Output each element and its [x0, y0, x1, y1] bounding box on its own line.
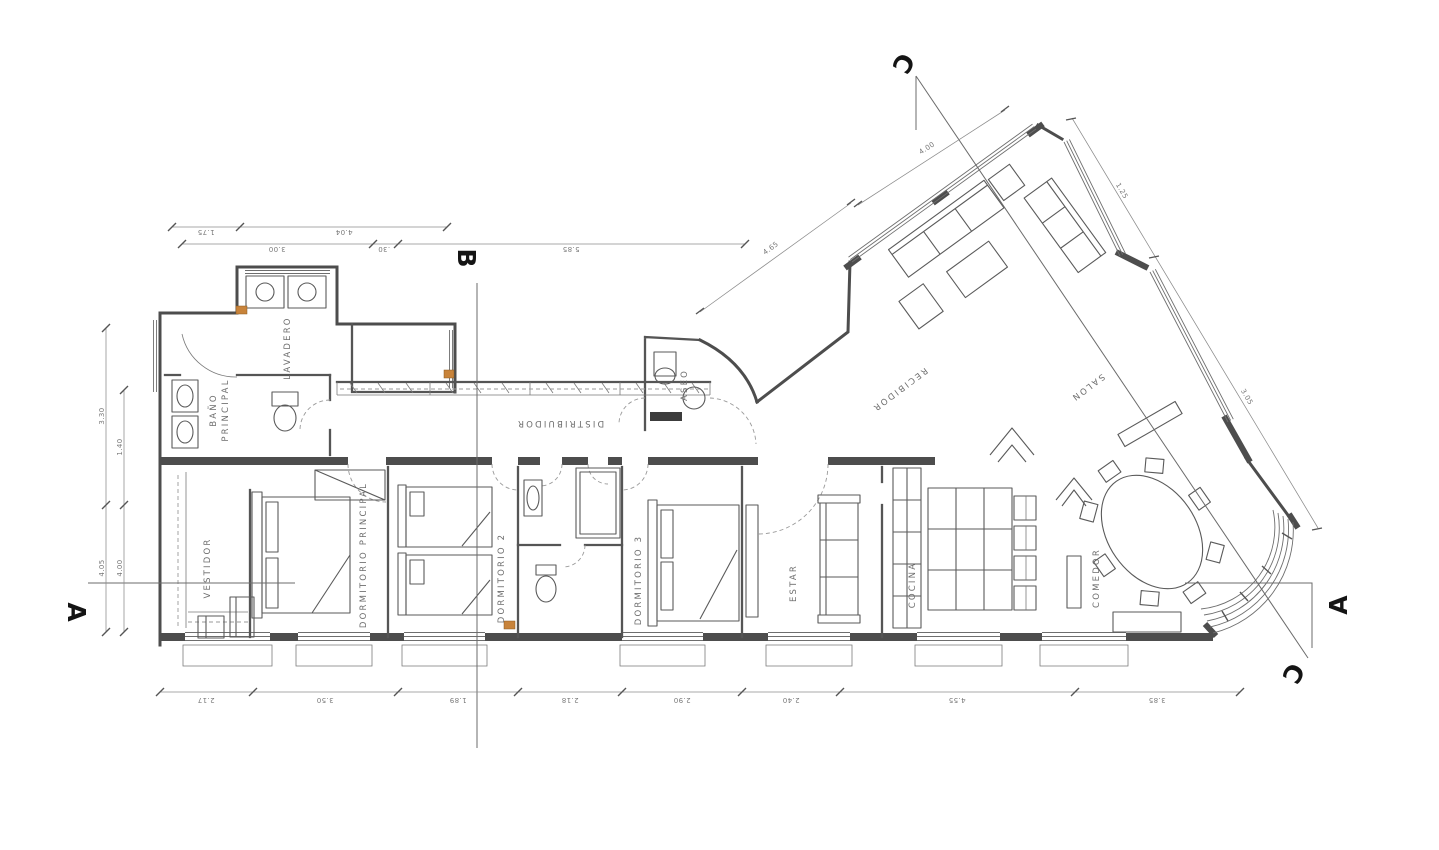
dim-left-inner-2: 4.00 — [116, 559, 124, 576]
lavadero-fixtures — [246, 276, 326, 308]
dim-bottom-8: 3.85 — [1148, 696, 1165, 704]
room-label-bano-principal-2: PRINCIPAL — [221, 378, 231, 441]
dim-bottom-7: 4.55 — [948, 696, 965, 704]
dim-bottom-4: 2.18 — [561, 696, 578, 704]
dim-left-inner-1: 1.40 — [116, 438, 124, 455]
dim-bottom-5: 2.90 — [673, 696, 690, 704]
section-marker-a-left: A — [62, 602, 91, 622]
dormitorio-2-furniture — [398, 485, 492, 615]
dim-bottom-6: 2.40 — [782, 696, 799, 704]
section-marker-b-top: B — [452, 248, 481, 267]
section-marker-c-top: C — [886, 48, 920, 78]
comedor-furniture — [990, 401, 1252, 635]
dim-salon-nw: 4.00 — [918, 140, 937, 156]
room-label-distribuidor: DISTRIBUIDOR — [516, 418, 604, 428]
bathroom-fixtures — [524, 468, 620, 602]
aseo-fixtures — [650, 352, 705, 421]
salon-furniture — [871, 147, 1106, 367]
doors — [182, 334, 828, 567]
section-marker-a-right: A — [1324, 595, 1353, 615]
room-labels: VESTIDOR DORMITORIO PRINCIPAL BAÑO PRINC… — [203, 316, 1106, 628]
vestidor-furniture — [178, 472, 248, 638]
dim-salon-ne-lower: 3.05 — [1239, 388, 1255, 407]
room-label-recibidor: RECIBIDOR — [870, 365, 930, 413]
room-label-cocina: COCINA — [908, 562, 918, 608]
dim-top2-1: 3.00 — [268, 245, 285, 253]
room-label-dormitorio-principal: DORMITORIO PRINCIPAL — [359, 482, 369, 628]
room-label-estar: ESTAR — [789, 564, 799, 602]
bottom-windows — [183, 633, 1128, 667]
estar-furniture — [746, 495, 860, 623]
dim-bottom-2: 3.50 — [316, 696, 333, 704]
room-label-bano-principal-1: BAÑO — [208, 393, 219, 427]
room-label-salon: SALON — [1068, 371, 1106, 403]
room-label-comedor: COMEDOR — [1092, 548, 1102, 608]
room-label-dormitorio-2: DORMITORIO 2 — [497, 533, 507, 623]
dim-top1-2: 4.04 — [335, 228, 352, 236]
dim-top2-3: 5.85 — [562, 245, 579, 253]
dim-bottom-3: 1.89 — [449, 696, 466, 704]
section-marker-c-bottom: C — [1276, 658, 1310, 688]
dim-salon-sw: 4.65 — [762, 240, 781, 257]
room-label-vestidor: VESTIDOR — [203, 537, 213, 598]
curved-bay-window — [1201, 510, 1293, 633]
dimension-lines — [102, 106, 1322, 696]
dim-top2-2: .30 — [378, 245, 390, 253]
dormitorio-3-furniture — [648, 500, 739, 626]
dim-left-outer-1: 3.30 — [98, 407, 106, 424]
exterior-walls — [154, 124, 1299, 645]
room-label-dormitorio-3: DORMITORIO 3 — [634, 535, 644, 625]
room-label-aseo: ASEO — [680, 369, 690, 401]
dim-left-outer-2: 4.05 — [98, 559, 106, 576]
dim-bottom-1: 2.17 — [197, 696, 214, 704]
bano-principal-fixtures — [172, 380, 298, 448]
dimension-labels: 1.75 4.04 3.00 .30 5.85 3.30 4.05 1.40 4… — [98, 140, 1255, 704]
floor-plan-canvas: A B C C A 1.75 4.04 3.00 .30 5.85 3.30 4… — [0, 0, 1439, 850]
dim-top1-1: 1.75 — [197, 228, 214, 236]
room-label-lavadero: LAVADERO — [283, 316, 293, 379]
